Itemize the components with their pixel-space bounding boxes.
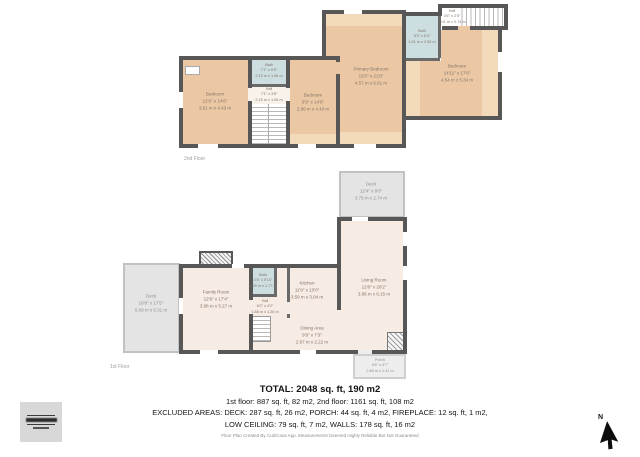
wall: [322, 10, 326, 60]
window: [403, 232, 407, 246]
room-label-porch: Porch 9'6" x 4'7" 2.89 m x 1.41 m: [366, 358, 393, 374]
window: [200, 350, 218, 354]
low-ceiling-strip: [340, 132, 402, 144]
floor-plan-canvas: Bedroom 12'6" x 14'6" 3.81 m x 4.43 m Ba…: [0, 0, 640, 457]
summary-disclaimer: Floor Plan Created By CubiCasa App. Meas…: [0, 433, 640, 438]
window: [300, 350, 316, 354]
summary-total: TOTAL: 2048 sq. ft, 190 m2: [0, 384, 640, 395]
room-label-living-room: Living Room 12'8" x 20'2" 3.86 m x 6.15 …: [358, 278, 390, 299]
door-opening: [287, 302, 290, 314]
room-label-bedroom-mid: Bedroom 9'9" x 14'6" 2.96 m x 4.43 m: [297, 93, 329, 114]
door-opening: [248, 88, 252, 101]
door-opening: [352, 217, 368, 221]
logo-wordmark: [26, 418, 57, 422]
room-label-deck-left: Deck 16'8" x 17'5" 5.09 m x 5.31 m: [135, 294, 167, 315]
room-label-bedroom-left: Bedroom 12'6" x 14'6" 3.81 m x 4.43 m: [199, 92, 231, 113]
window: [354, 144, 376, 148]
wall: [337, 217, 407, 221]
logo-subtext: [33, 427, 49, 429]
wall: [438, 4, 508, 8]
wall: [179, 56, 340, 60]
wall: [402, 116, 502, 120]
logo-line: [27, 424, 55, 425]
wall: [498, 30, 502, 120]
low-ceiling-strip: [482, 30, 498, 116]
floor1-label: 1st Floor: [110, 364, 129, 370]
room-label-bath-tr: Bath 6'3" x 8'3" 1.91 m x 2.50 m: [408, 29, 435, 45]
floor2-label: 2nd Floor: [184, 156, 205, 162]
door-opening: [286, 88, 290, 101]
window: [403, 266, 407, 280]
fireplace-living-room: [387, 332, 404, 351]
room-label-kitchen: Kitchen 11'9" x 10'0" 3.59 m x 3.04 m: [291, 281, 323, 302]
summary-excluded-1: EXCLUDED AREAS: DECK: 287 sq. ft, 26 m2,…: [0, 407, 640, 418]
summary-excluded-2: LOW CEILING: 79 sq. ft, 7 m2, WALLS: 178…: [0, 419, 640, 430]
room-label-hall-tr: Hall 3'4" x 2'5" 1.01 m x 0.74 m: [438, 9, 465, 25]
room-label-deck-top: Deck 12'4" x 9'0" 3.75 m x 2.74 m: [355, 182, 387, 203]
closet-box: [185, 66, 200, 75]
logo-line: [27, 415, 55, 416]
low-ceiling-strip: [326, 14, 402, 26]
wall: [337, 217, 341, 310]
door-opening: [232, 264, 244, 268]
area-summary: TOTAL: 2048 sq. ft, 190 m2 1st floor: 88…: [0, 384, 640, 438]
room-label-dining-area: Dining Area 9'9" x 7'3" 2.97 m x 2.22 m: [296, 326, 328, 347]
room-label-hall-1f: Hall 6'2" x 4'2" 1.88 m x 1.26 m: [251, 299, 278, 315]
window: [344, 10, 362, 14]
room-label-bath-1f: Bath 4'4" x 5'10" 0.99 m x 1.77 m: [249, 273, 276, 289]
wall: [322, 10, 406, 14]
room-label-family-room: Family Room 12'9" x 17'4" 3.88 m x 5.27 …: [200, 290, 232, 311]
stairs-2f: [252, 104, 286, 144]
window: [298, 144, 316, 148]
wall: [406, 12, 442, 16]
floor-connector: [337, 310, 341, 350]
wall: [248, 60, 252, 144]
wall: [406, 58, 440, 61]
room-label-primary-bedroom: Primary Bedroom 15'0" x 21'8" 4.57 m x 6…: [353, 67, 388, 88]
room-label-bedroom-right: Bedroom 14'11" x 17'6" 4.54 m x 5.34 m: [441, 64, 473, 85]
low-ceiling-strip: [406, 61, 420, 116]
room-label-bath-2f: Bath 7'1" x 6'5" 2.15 m x 1.96 m: [255, 63, 282, 79]
summary-floors: 1st floor: 887 sq. ft, 82 m2, 2nd floor:…: [0, 396, 640, 407]
wall: [179, 264, 341, 268]
room-label-hall-2f: Hall 7'1" x 3'6" 2.15 m x 1.06 m: [255, 87, 282, 103]
door-opening: [458, 26, 470, 30]
wall: [253, 294, 274, 297]
wall: [402, 10, 406, 148]
wall: [442, 26, 504, 30]
window: [198, 144, 218, 148]
low-ceiling-strip: [290, 134, 336, 144]
north-label: N: [598, 414, 603, 421]
north-arrow: N: [596, 414, 628, 452]
window: [179, 92, 183, 108]
wall: [286, 60, 290, 144]
stairs-divider: [268, 104, 269, 144]
wall: [504, 4, 508, 30]
door-opening: [179, 298, 183, 314]
window: [498, 52, 502, 72]
door-opening: [358, 350, 372, 354]
door-opening: [336, 62, 340, 74]
brand-logo: [20, 402, 62, 442]
